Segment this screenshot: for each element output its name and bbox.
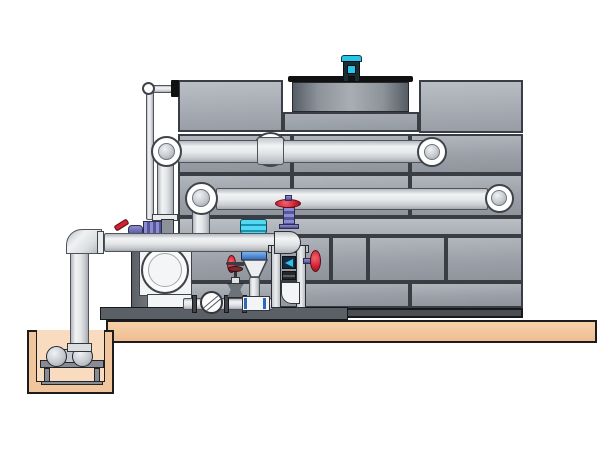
pipe-flange: [192, 295, 197, 313]
suction-riser: [70, 248, 89, 350]
tower-panel: [446, 236, 523, 282]
check-valve: [200, 291, 223, 314]
upper-supply-pipe: [178, 140, 425, 163]
tower-top-panel-left: [178, 80, 283, 132]
gate-valve-bonnet: [231, 277, 240, 284]
header-flange: [97, 231, 104, 254]
frame-drain-elbow: [281, 282, 300, 304]
header-end-cap: [274, 231, 301, 254]
makeup-line-elbow: [142, 82, 155, 95]
middle-return-pipe: [216, 188, 488, 210]
tower-fan-deck-front: [283, 112, 419, 132]
sump-pump-stand-rail: [41, 381, 103, 385]
upper-pipe-end-dome: [424, 144, 440, 160]
middle-pipe-elbow-dome: [192, 189, 210, 207]
upper-pipe-elbow-dome: [158, 143, 175, 160]
small-gray-junction-box: [161, 219, 174, 234]
middle-pipe-end-dome: [491, 190, 507, 206]
gate-valve-handwheel: [228, 266, 243, 272]
vent-valve-stem-top: [285, 195, 292, 201]
makeup-line-flange: [171, 80, 179, 97]
fan-shroud: [292, 82, 409, 112]
fan-motor-badge: [347, 65, 356, 74]
upper-pipe-sleeve: [257, 137, 284, 165]
tee-blue-gasket: [263, 298, 266, 309]
flow-arrow-icon: [285, 259, 293, 267]
tower-top-panel-right: [419, 80, 523, 133]
gate-valve-crosshandle: [226, 262, 245, 265]
vent-valve-flange: [279, 224, 299, 229]
makeup-line-horizontal: [152, 85, 172, 93]
strainer-drop-pipe: [249, 277, 260, 298]
side-valve-handwheel: [310, 250, 321, 272]
tower-panel: [331, 236, 368, 282]
flow-indicator: [282, 256, 296, 269]
frame-column-left: [271, 245, 281, 308]
tee-blue-gasket: [244, 298, 247, 309]
tower-panel: [410, 282, 523, 308]
riser-pipe-upper: [157, 158, 174, 218]
fan-motor-foot: [344, 76, 348, 81]
fan-motor-foot: [355, 76, 359, 81]
sump-pump-motor: [46, 346, 67, 367]
diagram-cooling-tower-system: [0, 0, 600, 450]
suction-inlet-fitting: [67, 343, 92, 352]
strainer-cone: [242, 259, 268, 278]
foundation-slab: [106, 320, 597, 343]
frame-junction-box: [282, 271, 296, 280]
pump-suction-inner-ring: [148, 253, 182, 287]
tower-panel: [368, 236, 446, 282]
lower-header-pipe: [104, 233, 280, 252]
butterfly-valve-actuator: [240, 219, 267, 234]
